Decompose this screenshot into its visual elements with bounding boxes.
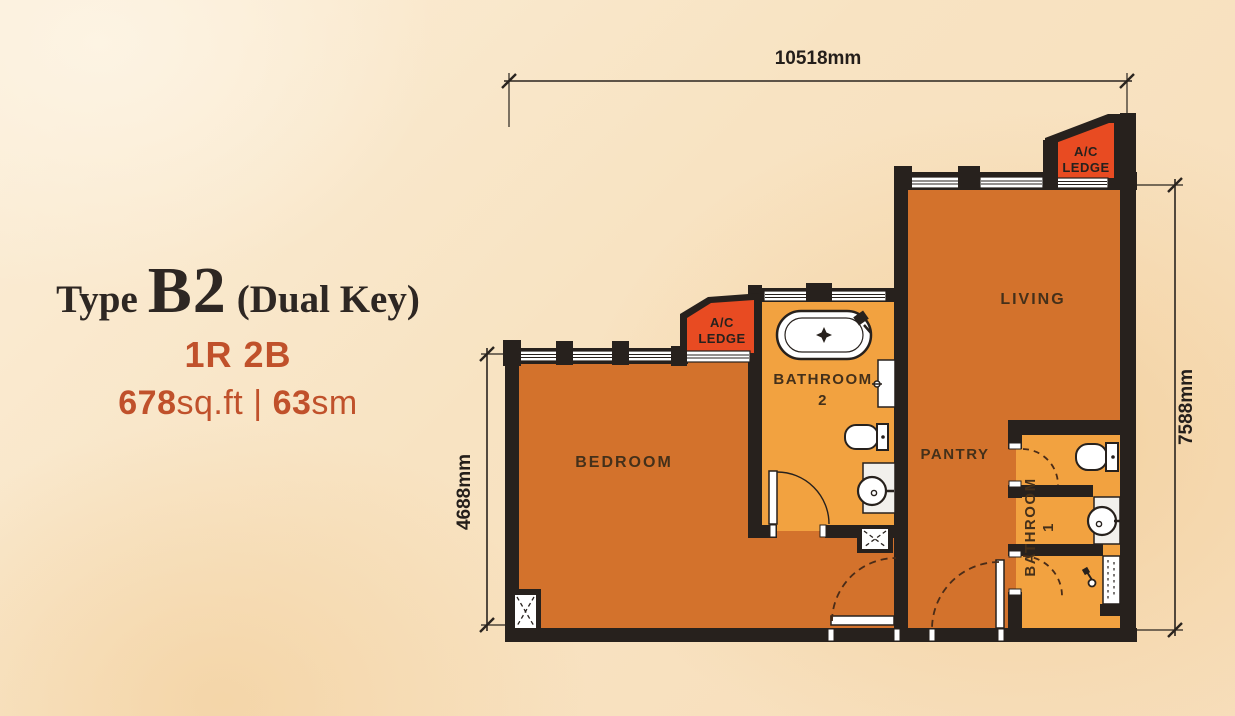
ac-ledge-left-label-2: LEDGE — [698, 331, 745, 346]
pillar — [612, 341, 629, 365]
ac-ledge-right-label-1: A/C — [1074, 144, 1098, 159]
area-sqft-value: 678 — [118, 384, 176, 422]
column-corridor — [857, 525, 893, 553]
sink-basin — [1088, 507, 1116, 535]
toilet-bowl — [845, 425, 878, 449]
floor-plan-page: Type B2 (Dual Key) 1R 2B 678sq.ft|63sm — [0, 0, 1235, 716]
door-jamb — [929, 629, 935, 641]
wall-living-left — [894, 170, 908, 628]
unit-type-title: Type B2 (Dual Key) — [18, 258, 458, 324]
door-jamb — [820, 525, 826, 537]
living-window-b — [980, 177, 1043, 188]
window-pane — [1056, 178, 1108, 188]
toilet-bowl — [1076, 444, 1107, 470]
dimension-right-label: 7588mm — [1176, 369, 1197, 445]
pillar — [556, 341, 573, 365]
bedroom-window — [520, 351, 673, 361]
bathroom1-label-line2: 1 — [1040, 522, 1057, 532]
column-bedroom — [510, 589, 541, 633]
door-leaf — [769, 471, 777, 524]
unit-type-suffix: (Dual Key) — [237, 278, 420, 321]
ac-ledge-right-label-2: LEDGE — [1062, 160, 1109, 175]
wall-bathroom1-top — [1008, 420, 1136, 435]
wall-bathroom1-left-d — [1008, 592, 1022, 642]
bathroom2-label-line2: 2 — [818, 392, 828, 409]
toilet-flush-dot — [881, 435, 885, 439]
title-block: Type B2 (Dual Key) 1R 2B 678sq.ft|63sm — [18, 258, 458, 423]
living-label: LIVING — [1000, 291, 1065, 308]
door-jamb — [1009, 481, 1021, 487]
door-jamb — [1009, 551, 1021, 557]
dimension-top — [502, 73, 1134, 127]
wall-right — [1120, 113, 1136, 642]
unit-area: 678sq.ft|63sm — [18, 384, 458, 423]
door-jamb — [828, 629, 834, 641]
dimension-top-label: 10518mm — [775, 48, 862, 69]
pillar — [671, 346, 687, 366]
pillar — [958, 166, 980, 190]
wall-shower-bottom — [1100, 604, 1122, 616]
shower-tray — [1103, 556, 1120, 604]
window-pane — [980, 177, 1043, 188]
ac-ledge-left-label-1: A/C — [710, 315, 734, 330]
pillar — [1043, 140, 1058, 190]
bathroom1-label-line1: BATHROOM — [1022, 477, 1039, 576]
wall-bottom — [505, 628, 1137, 642]
window-pane — [910, 177, 960, 188]
ac-ledge-right-window — [1056, 178, 1108, 188]
area-sm-unit: sm — [311, 384, 357, 422]
toilet-flush-dot — [1111, 455, 1115, 459]
living-window-a — [910, 177, 960, 188]
dimension-left-label: 4688mm — [454, 454, 475, 530]
window-pane — [520, 351, 673, 361]
shower-head-icon — [1089, 580, 1096, 587]
door-leaf — [831, 616, 894, 625]
unit-layout: 1R 2B — [18, 334, 458, 376]
window-pane — [684, 351, 750, 362]
bedroom-label: BEDROOM — [575, 454, 673, 471]
door-jamb — [894, 629, 900, 641]
pillar — [894, 166, 912, 190]
door-jamb — [1009, 589, 1021, 595]
door-jamb — [1009, 443, 1021, 449]
pantry-label: PANTRY — [921, 446, 990, 463]
pillar — [503, 340, 521, 366]
ac-ledge-left-window — [684, 351, 750, 362]
door-jamb — [998, 629, 1004, 641]
bathroom2-label-line1: BATHROOM — [773, 371, 872, 388]
pillar — [806, 283, 832, 302]
unit-type-code: B2 — [142, 254, 233, 327]
door-jamb — [770, 525, 776, 537]
dimension-left — [480, 347, 507, 632]
unit-type-prefix: Type — [56, 278, 138, 321]
area-divider: | — [243, 384, 272, 422]
area-sqft-unit: sq.ft — [176, 384, 243, 422]
area-sm-value: 63 — [273, 384, 312, 422]
door-leaf — [996, 560, 1004, 628]
